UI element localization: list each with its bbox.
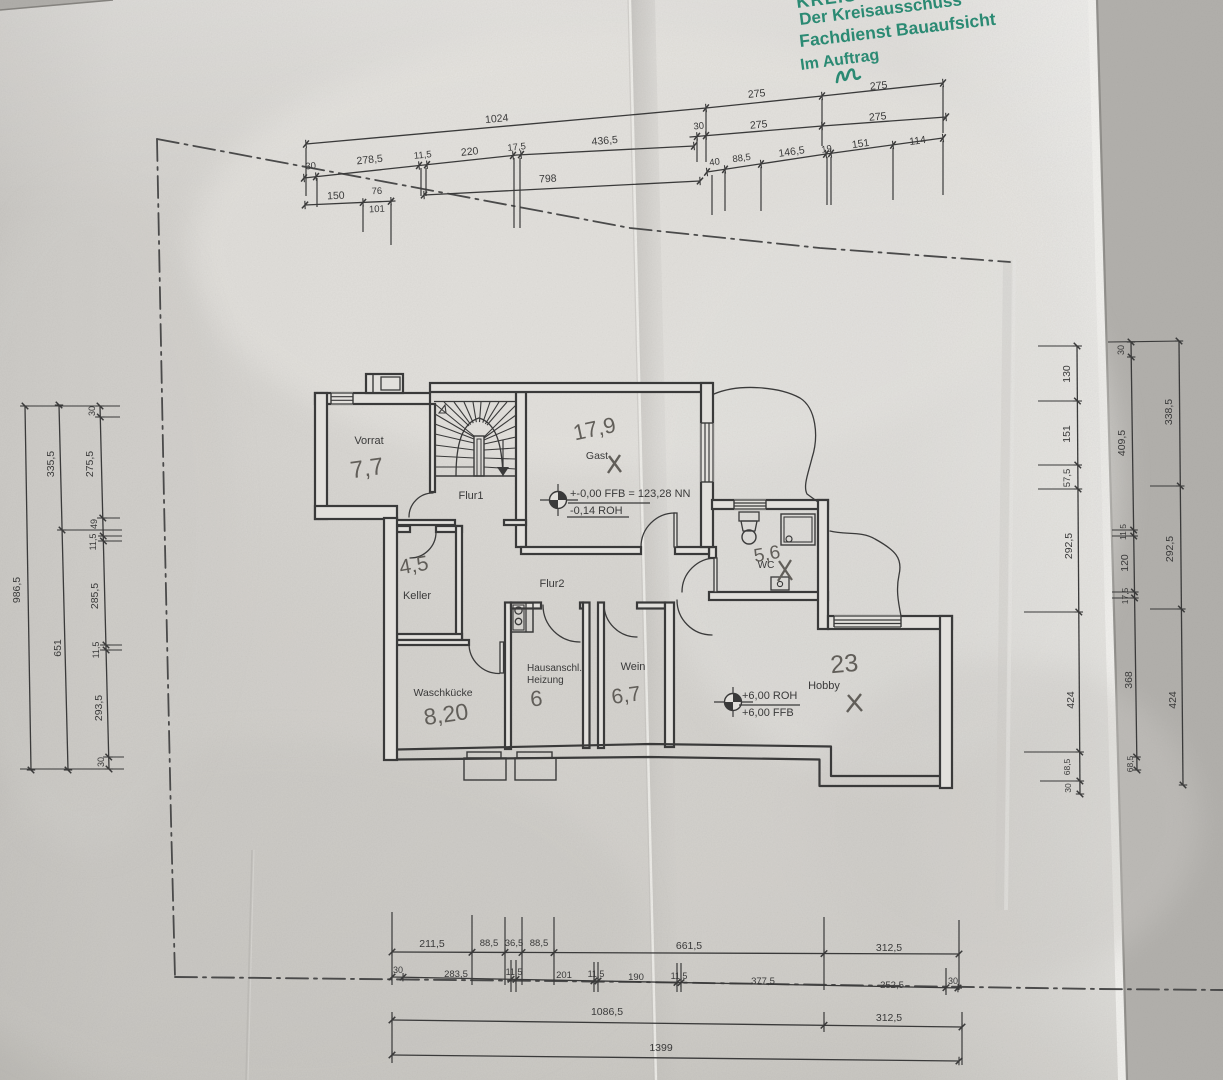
svg-text:11,5: 11,5 — [588, 969, 605, 979]
svg-text:285,5: 285,5 — [89, 583, 101, 609]
svg-text:Wein: Wein — [621, 661, 646, 673]
svg-text:Vorrat: Vorrat — [354, 435, 383, 447]
svg-text:11,5: 11,5 — [413, 149, 432, 162]
svg-text:23: 23 — [829, 649, 859, 679]
svg-text:130: 130 — [1061, 365, 1073, 383]
svg-text:1086,5: 1086,5 — [591, 1006, 623, 1018]
svg-text:436,5: 436,5 — [591, 134, 618, 148]
svg-text:30: 30 — [1063, 783, 1073, 793]
svg-text:Hausanschl.: Hausanschl. — [527, 663, 582, 674]
svg-text:68,5: 68,5 — [1125, 755, 1135, 772]
svg-text:Heizung: Heizung — [527, 675, 564, 686]
svg-text:101: 101 — [369, 204, 385, 216]
svg-text:+6,00 ROH: +6,00 ROH — [742, 690, 797, 702]
svg-text:211,5: 211,5 — [419, 938, 445, 950]
svg-text:11,5: 11,5 — [1118, 524, 1128, 540]
svg-text:30: 30 — [1116, 345, 1126, 355]
svg-text:49: 49 — [89, 519, 99, 529]
svg-text:36,5: 36,5 — [505, 938, 524, 949]
svg-text:30: 30 — [393, 965, 403, 975]
svg-text:368: 368 — [1123, 671, 1135, 689]
svg-text:Keller: Keller — [403, 590, 431, 602]
svg-text:275: 275 — [749, 118, 768, 131]
svg-text:30: 30 — [305, 160, 317, 172]
svg-text:252,5: 252,5 — [880, 980, 904, 991]
svg-text:335,5: 335,5 — [45, 451, 57, 477]
svg-text:30: 30 — [693, 121, 704, 133]
svg-text:Gast: Gast — [586, 450, 608, 462]
svg-text:1024: 1024 — [485, 112, 510, 126]
svg-text:151: 151 — [1061, 425, 1073, 443]
svg-text:57,5: 57,5 — [1062, 469, 1073, 488]
svg-text:Hobby: Hobby — [808, 680, 840, 692]
svg-text:Waschkücke: Waschkücke — [413, 687, 472, 699]
svg-text:275: 275 — [869, 79, 888, 93]
svg-text:292,5: 292,5 — [1164, 536, 1176, 562]
svg-text:424: 424 — [1167, 691, 1179, 709]
svg-text:120: 120 — [1119, 554, 1131, 572]
svg-text:11,5: 11,5 — [91, 642, 101, 659]
svg-text:275: 275 — [868, 110, 887, 123]
svg-text:150: 150 — [327, 190, 345, 203]
svg-text:6,7: 6,7 — [610, 682, 642, 709]
svg-text:409,5: 409,5 — [1116, 430, 1128, 456]
svg-text:+6,00 FFB: +6,00 FFB — [742, 707, 794, 719]
svg-text:275: 275 — [747, 87, 766, 101]
svg-text:11,5: 11,5 — [506, 967, 523, 977]
svg-text:30: 30 — [96, 757, 106, 767]
svg-text:1399: 1399 — [649, 1042, 673, 1054]
svg-text:76: 76 — [371, 186, 382, 197]
svg-text:201: 201 — [556, 970, 572, 981]
svg-text:30: 30 — [87, 406, 97, 416]
svg-text:88,5: 88,5 — [530, 938, 549, 949]
svg-text:798: 798 — [539, 173, 557, 186]
svg-text:-0,14 ROH: -0,14 ROH — [570, 505, 623, 517]
svg-text:151: 151 — [851, 137, 870, 151]
svg-text:338,5: 338,5 — [1163, 399, 1175, 425]
svg-text:424: 424 — [1065, 691, 1077, 709]
svg-text:312,5: 312,5 — [876, 942, 902, 954]
svg-text:275,5: 275,5 — [84, 451, 96, 477]
svg-text:Flur2: Flur2 — [539, 578, 564, 590]
svg-text:11,5: 11,5 — [671, 971, 688, 981]
svg-text:190: 190 — [628, 972, 644, 983]
svg-text:40: 40 — [709, 156, 721, 168]
svg-text:17,5: 17,5 — [1120, 587, 1130, 604]
svg-text:+-0,00 FFB = 123,28 NN: +-0,00 FFB = 123,28 NN — [570, 488, 691, 500]
svg-text:17,5: 17,5 — [507, 141, 527, 154]
svg-text:986,5: 986,5 — [11, 577, 23, 603]
svg-text:6: 6 — [529, 686, 543, 712]
svg-text:283,5: 283,5 — [444, 969, 468, 980]
svg-text:68,5: 68,5 — [1062, 758, 1072, 775]
svg-text:651: 651 — [52, 639, 64, 657]
svg-text:661,5: 661,5 — [676, 940, 702, 952]
svg-text:Flur1: Flur1 — [458, 490, 483, 502]
svg-text:30: 30 — [948, 976, 958, 986]
svg-text:377,5: 377,5 — [751, 976, 775, 987]
svg-text:293,5: 293,5 — [93, 695, 105, 721]
svg-text:7,7: 7,7 — [349, 453, 386, 484]
svg-text:220: 220 — [460, 145, 479, 159]
svg-text:114: 114 — [908, 134, 926, 148]
svg-text:88,5: 88,5 — [480, 938, 499, 949]
svg-text:292,5: 292,5 — [1063, 533, 1075, 559]
svg-text:312,5: 312,5 — [876, 1012, 902, 1024]
svg-text:11,5: 11,5 — [88, 534, 98, 551]
